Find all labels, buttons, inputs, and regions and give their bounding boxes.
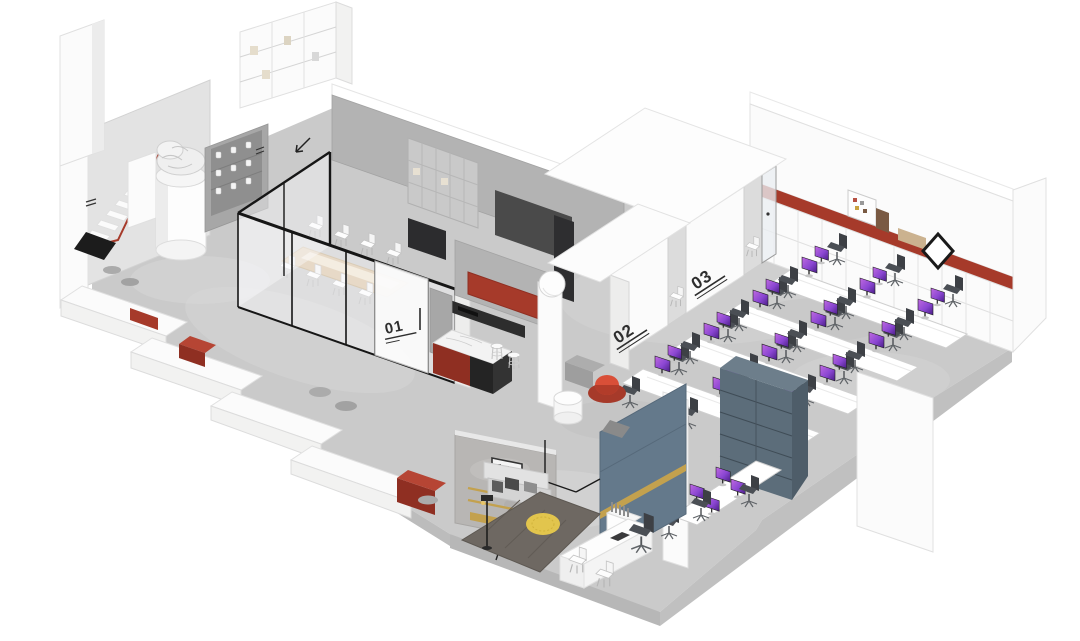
white-round-table: [554, 391, 582, 424]
booth-03-opening: [744, 175, 762, 275]
round-planter: [156, 141, 206, 260]
east-wall: [1013, 178, 1046, 352]
office-isometric-illustration: 01: [0, 0, 1080, 641]
stair-counter: [128, 152, 156, 228]
white-partition-right: [857, 372, 933, 552]
yellow-round-rug: [526, 513, 560, 535]
sphere-pendant-lamp: [539, 271, 565, 297]
lamp-partition: [538, 271, 565, 410]
scene-canvas: 01: [0, 0, 1080, 641]
booth-02-opening: [668, 225, 686, 325]
